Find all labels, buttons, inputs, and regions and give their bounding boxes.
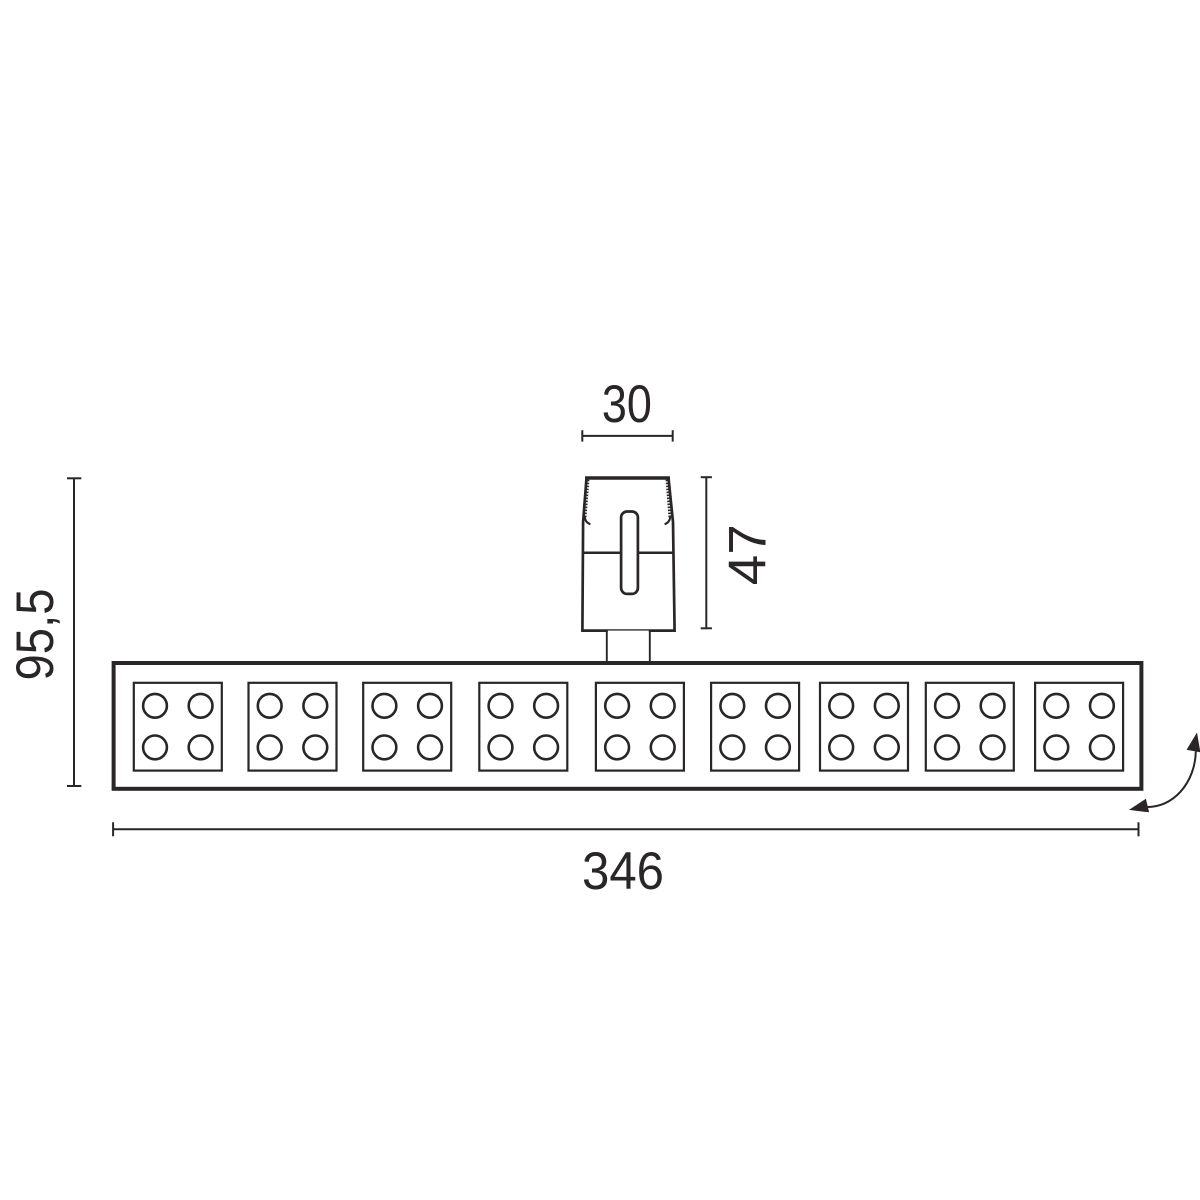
svg-text:346: 346 xyxy=(582,842,664,901)
svg-text:47: 47 xyxy=(718,524,777,585)
svg-text:95,5: 95,5 xyxy=(6,589,65,681)
svg-text:30: 30 xyxy=(602,375,652,434)
